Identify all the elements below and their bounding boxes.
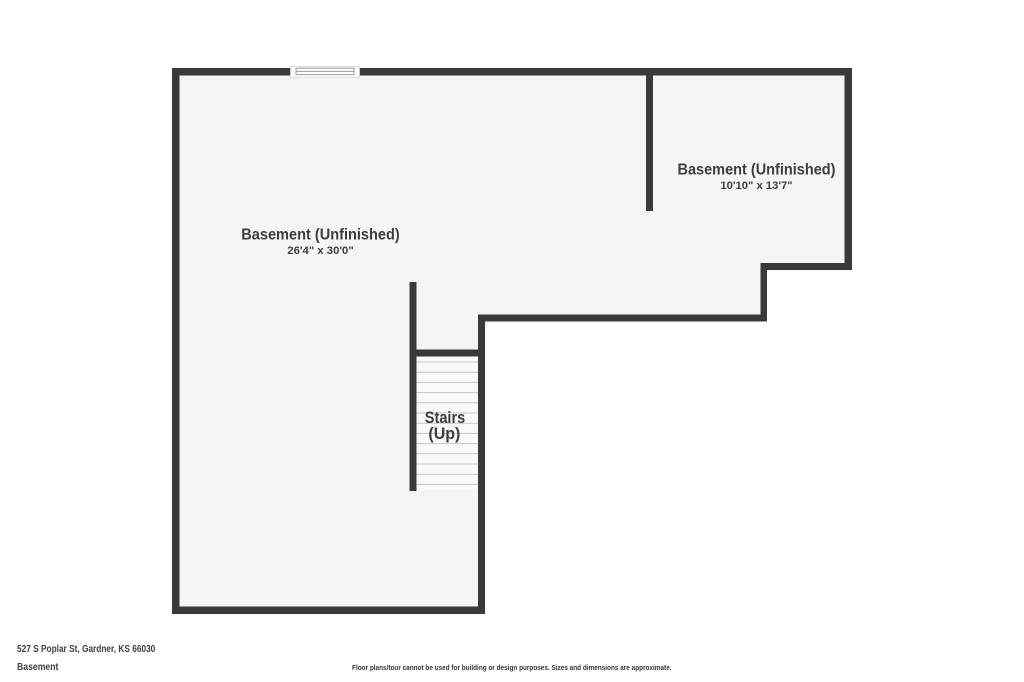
svg-text:26'4" x 30'0": 26'4" x 30'0" xyxy=(287,245,353,257)
svg-text:Basement (Unfinished): Basement (Unfinished) xyxy=(241,227,400,244)
svg-text:10'10" x 13'7": 10'10" x 13'7" xyxy=(720,180,792,192)
svg-text:(Up): (Up) xyxy=(428,424,460,443)
svg-text:Floor plans/tour cannot be use: Floor plans/tour cannot be used for buil… xyxy=(352,663,672,672)
svg-text:Basement: Basement xyxy=(17,661,59,673)
svg-text:Basement (Unfinished): Basement (Unfinished) xyxy=(678,162,836,179)
svg-text:527 S Poplar St, Gardner, KS 6: 527 S Poplar St, Gardner, KS 66030 xyxy=(17,643,155,655)
